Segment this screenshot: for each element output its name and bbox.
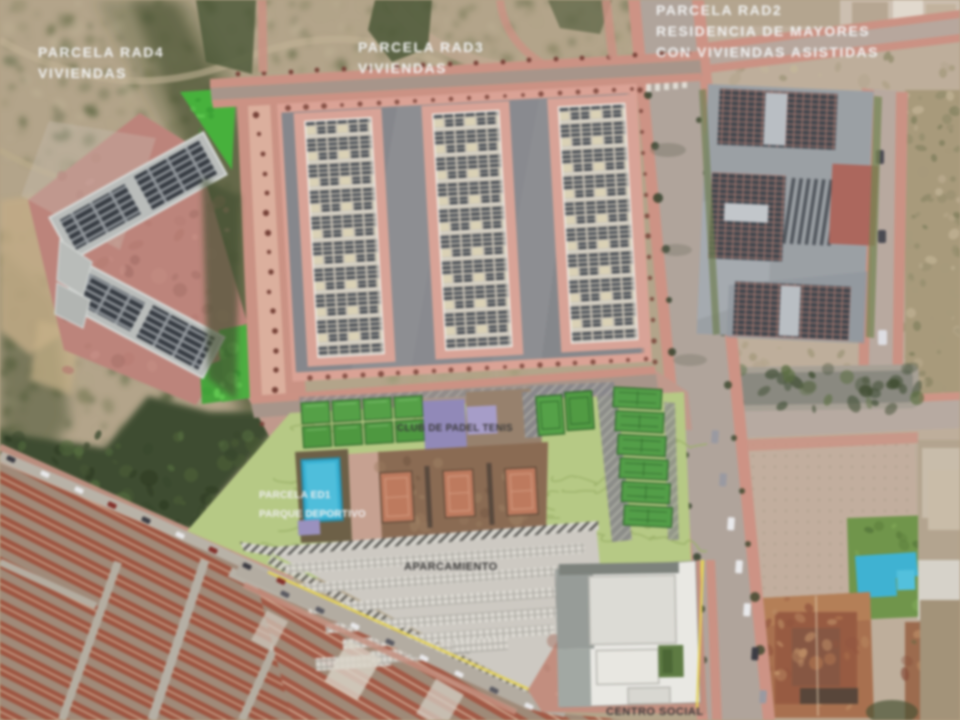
svg-text:CENTRO SOCIAL: CENTRO SOCIAL bbox=[606, 706, 704, 718]
svg-text:VIVIENDAS: VIVIENDAS bbox=[38, 65, 127, 81]
svg-text:PARCELA RAD3: PARCELA RAD3 bbox=[358, 39, 484, 55]
svg-text:CLUB DE PADEL TENIS: CLUB DE PADEL TENIS bbox=[397, 423, 513, 434]
svg-text:RESIDENCIA DE MAYORES: RESIDENCIA DE MAYORES bbox=[656, 23, 870, 39]
svg-text:PARCELA RAD4: PARCELA RAD4 bbox=[38, 44, 164, 60]
svg-text:PARCELA RAD2: PARCELA RAD2 bbox=[656, 2, 782, 18]
svg-text:PARQUE DEPORTIVO: PARQUE DEPORTIVO bbox=[259, 509, 366, 520]
svg-text:CON VIVIENDAS ASISTIDAS: CON VIVIENDAS ASISTIDAS bbox=[656, 44, 879, 60]
svg-text:VIVIENDAS: VIVIENDAS bbox=[358, 60, 447, 76]
svg-text:PARCELA ED1: PARCELA ED1 bbox=[259, 490, 331, 501]
svg-text:APARCAMIENTO: APARCAMIENTO bbox=[404, 561, 498, 573]
